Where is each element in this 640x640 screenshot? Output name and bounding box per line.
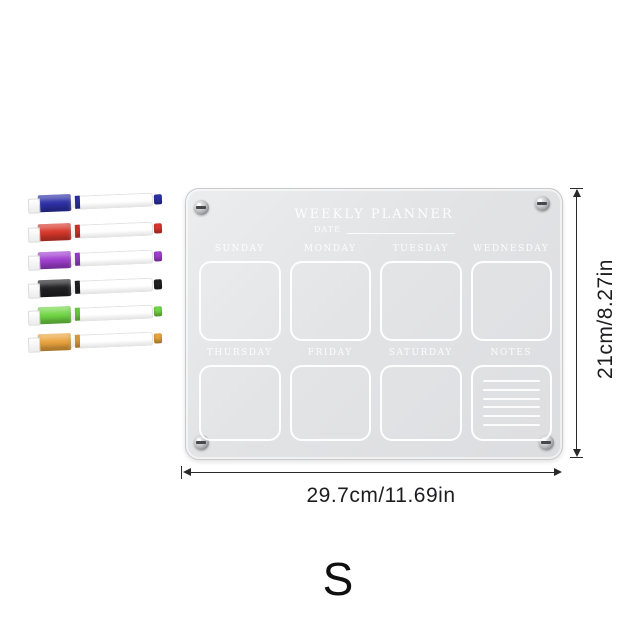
note-line: [483, 380, 541, 382]
pen-cap: [38, 223, 72, 241]
day-header-sunday: SUNDAY: [199, 243, 281, 255]
note-line: [483, 406, 541, 408]
day-grid: SUNDAY MONDAY TUESDAY WEDNESDAY THURSDAY…: [199, 243, 552, 441]
day-header-notes: NOTES: [471, 347, 553, 359]
arrow-up-icon: [573, 189, 581, 197]
day-header-wednesday: WEDNESDAY: [471, 243, 553, 255]
day-box-thursday: [199, 365, 281, 441]
notes-box notes-lines: [471, 365, 553, 441]
date-line: [347, 233, 455, 234]
planner-board: WEEKLY PLANNER DATE SUNDAY MONDAY TUESDA…: [185, 188, 563, 460]
day-box-saturday: [380, 365, 462, 441]
note-line: [483, 398, 541, 400]
marker-pen-purple: [28, 246, 163, 271]
day-box-sunday: [199, 261, 281, 341]
day-box-tuesday: [380, 261, 462, 341]
pen-end-plug: [154, 333, 162, 343]
pen-eraser-tip: [28, 227, 41, 242]
height-dimension-label: 21cm/8.27in: [594, 259, 618, 379]
width-dimension-label: 29.7cm/11.69in: [306, 484, 455, 508]
note-line: [483, 424, 541, 426]
pen-eraser-tip: [28, 198, 41, 213]
day-box-monday: [290, 261, 372, 341]
day-header-tuesday: TUESDAY: [380, 243, 462, 255]
marker-pen-black: [28, 274, 163, 299]
pen-barrel: [80, 221, 154, 238]
arrow-down-icon: [573, 449, 581, 457]
marker-pen-red: [28, 218, 163, 243]
pen-eraser-tip: [28, 255, 41, 270]
day-box-friday: [290, 365, 372, 441]
date-row: DATE: [314, 225, 455, 234]
note-line: [483, 389, 541, 391]
dimension-tick: [570, 457, 583, 458]
pen-cap: [38, 333, 72, 351]
dimension-line: [186, 472, 558, 473]
pen-eraser-tip: [28, 337, 41, 352]
day-header-saturday: SATURDAY: [380, 347, 462, 359]
arrow-left-icon: [183, 468, 191, 476]
date-label: DATE: [314, 225, 341, 234]
pen-cap: [38, 251, 72, 269]
marker-pen-green: [28, 301, 163, 326]
pen-cap: [38, 306, 72, 324]
day-box-wednesday: [471, 261, 553, 341]
arrow-right-icon: [554, 468, 562, 476]
pen-cap: [38, 194, 72, 212]
pen-barrel: [80, 192, 154, 209]
pen-eraser-tip: [28, 310, 41, 325]
note-line: [483, 415, 541, 417]
pen-eraser-tip: [28, 283, 41, 298]
pen-cap: [38, 279, 72, 297]
marker-pen-blue: [28, 189, 163, 214]
pen-barrel: [80, 304, 154, 321]
board-title: WEEKLY PLANNER: [186, 207, 562, 222]
size-label: S: [323, 552, 354, 606]
day-header-friday: FRIDAY: [290, 347, 372, 359]
product-image: WEEKLY PLANNER DATE SUNDAY MONDAY TUESDA…: [0, 0, 640, 640]
day-header-thursday: THURSDAY: [199, 347, 281, 359]
pen-end-plug: [154, 194, 162, 204]
pen-end-plug: [154, 306, 162, 316]
pen-barrel: [80, 277, 154, 294]
dimension-line: [576, 190, 577, 452]
marker-pen-orange: [28, 328, 163, 353]
pen-barrel: [80, 331, 154, 348]
pen-end-plug: [154, 251, 162, 261]
dimension-tick: [181, 466, 182, 479]
day-header-monday: MONDAY: [290, 243, 372, 255]
pen-end-plug: [154, 223, 162, 233]
pen-end-plug: [154, 279, 162, 289]
pen-barrel: [80, 249, 154, 266]
